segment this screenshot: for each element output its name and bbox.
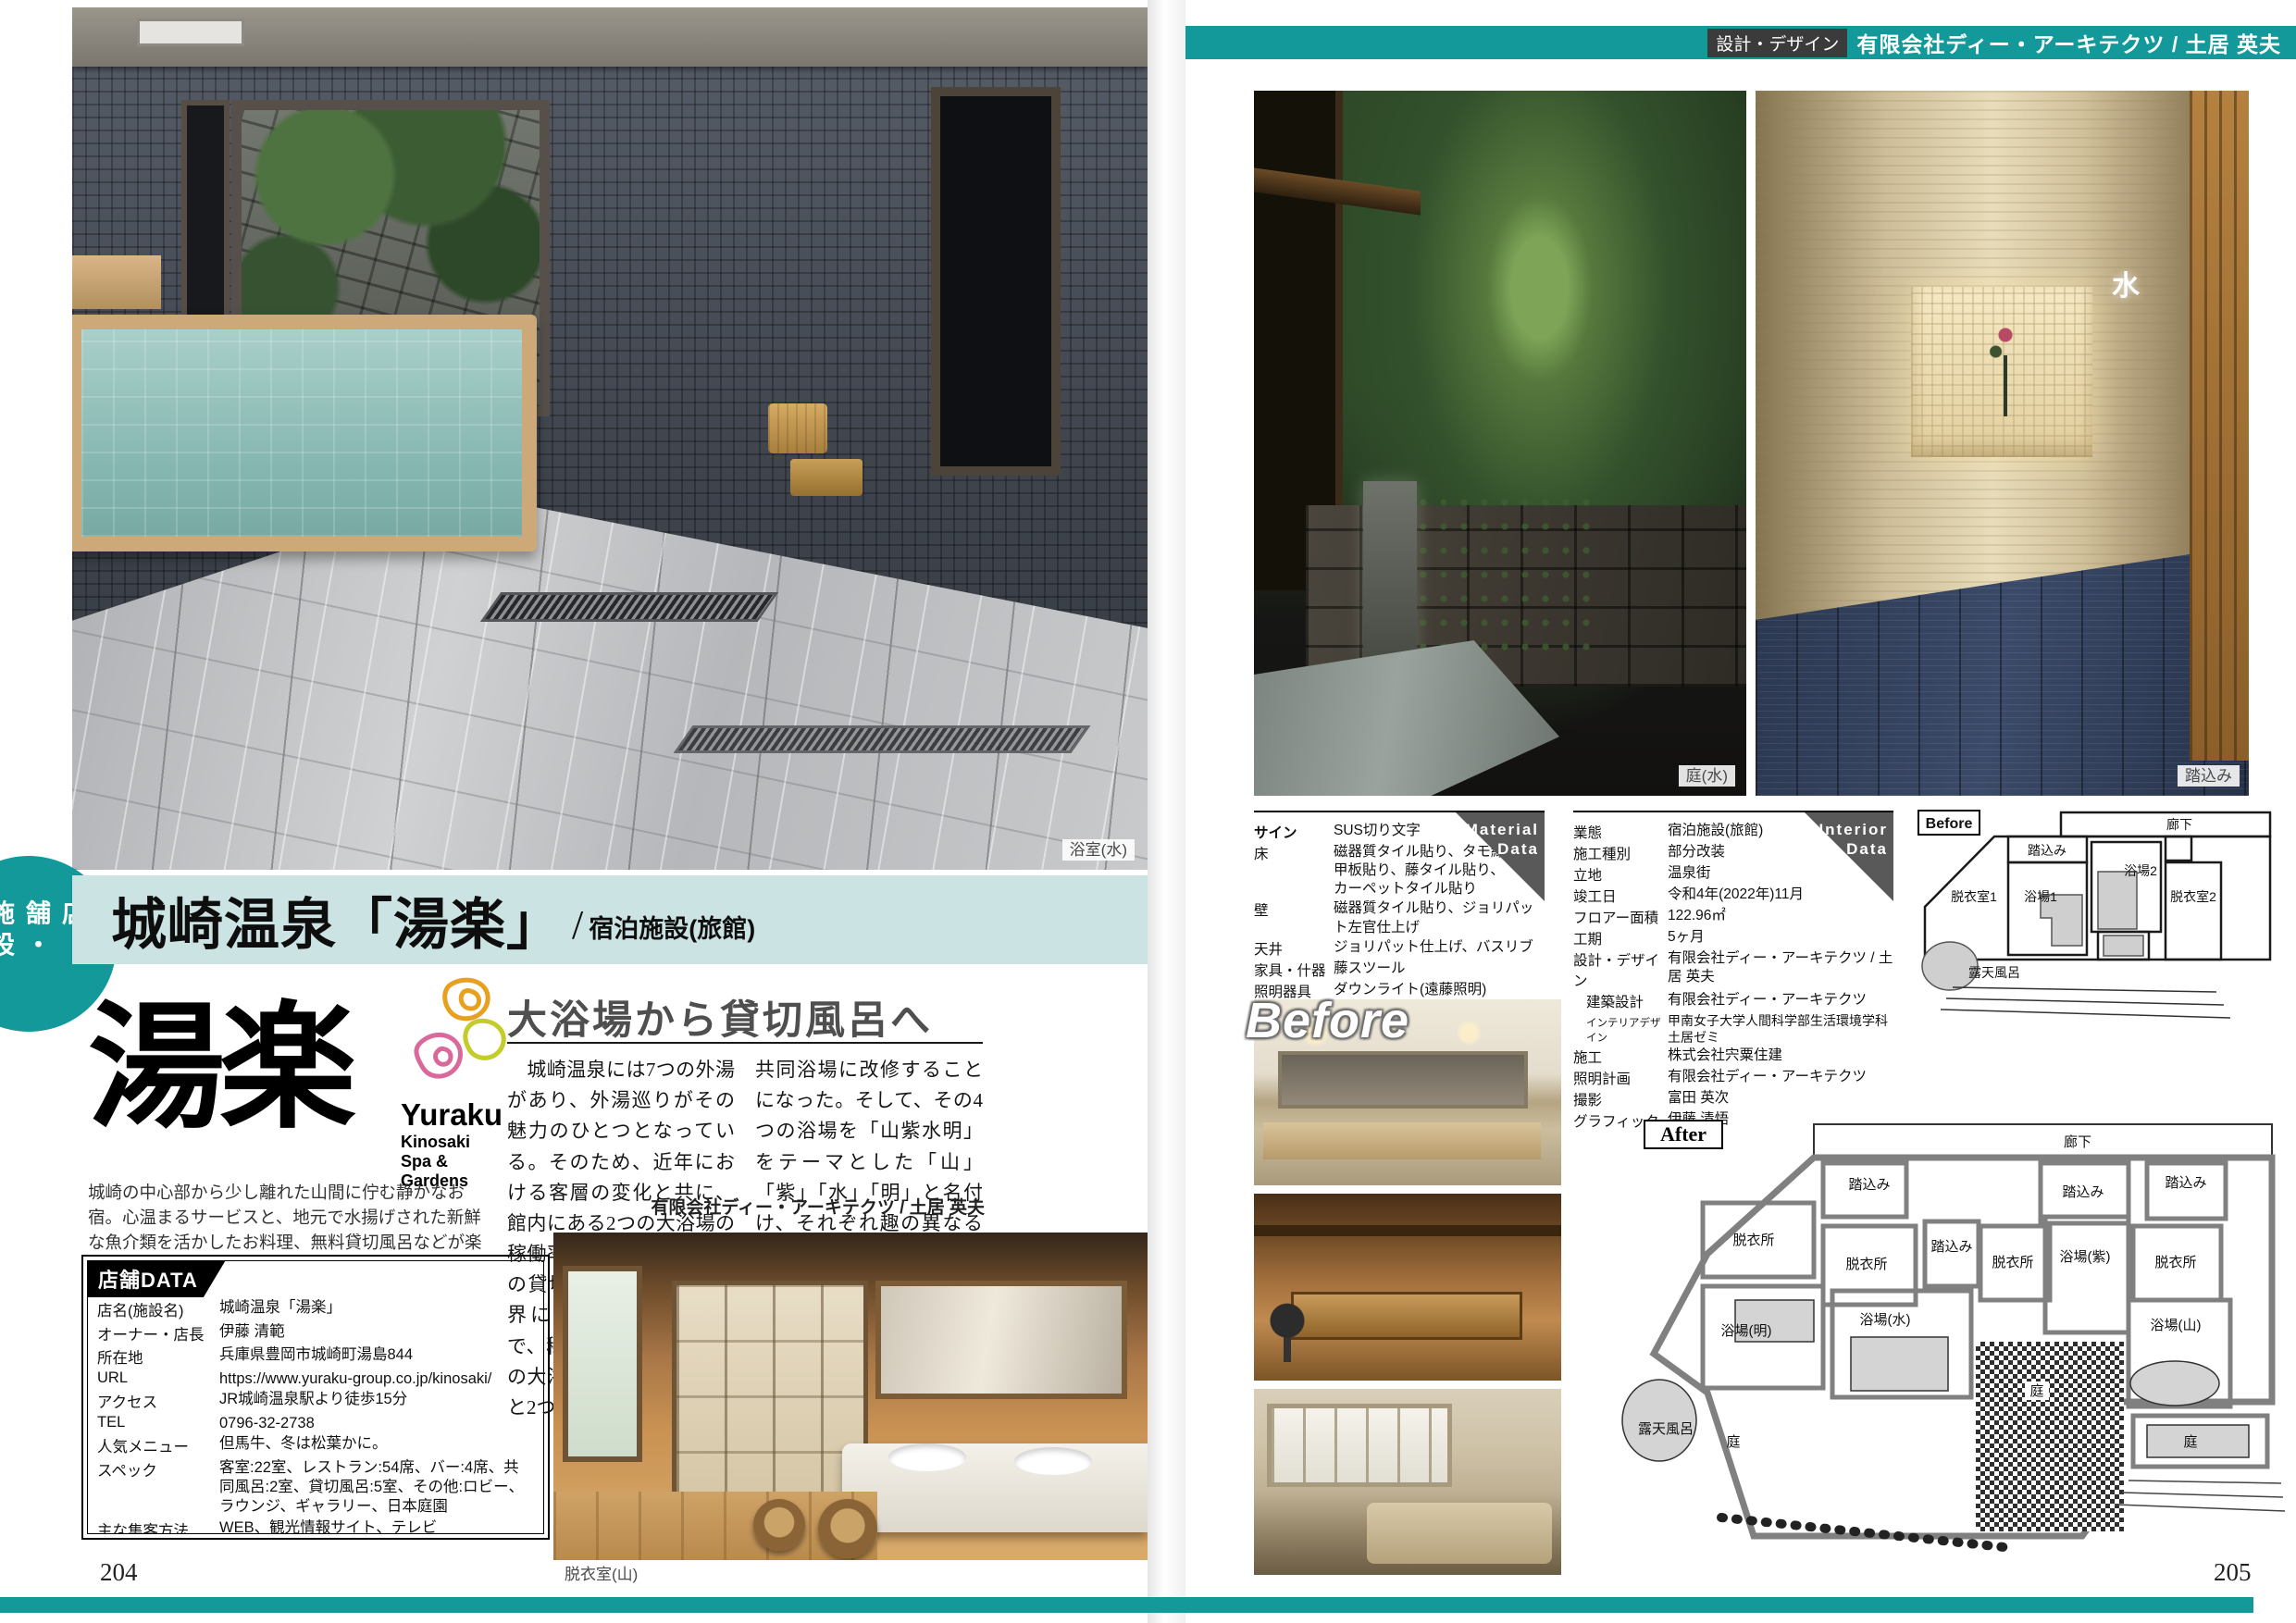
interior-data-tag: Interior Data [1818, 820, 1888, 860]
shop-data-title: 店舗DATA [87, 1260, 226, 1297]
plan-room-label: 浴場(山) [2151, 1318, 2202, 1333]
plan-room-label: 踏込み [2165, 1175, 2206, 1191]
plan-room-label: 浴場(明) [1721, 1323, 1772, 1339]
electric-fan [1267, 1303, 1308, 1362]
interior-row: 照明計画有限会社ディー・アーキテクツ [1573, 1068, 1893, 1088]
wood-bench [72, 255, 161, 309]
page-gutter [1148, 0, 1185, 1623]
material-row: 天井ジョリパット仕上げ、バスリブ [1254, 938, 1545, 959]
shop-data-inner: 店舗DATA 店名(施設名)城崎温泉「湯楽」 オーナー・店長伊藤 清範 所在地兵… [87, 1260, 544, 1534]
floor-drain-grate [480, 592, 778, 622]
stone-fountain [1363, 481, 1417, 657]
bathtub [1367, 1503, 1552, 1564]
shop-data-row: 人気メニュー但馬牛、冬は松葉かに。 [97, 1434, 532, 1456]
plan-room-label: 浴場(水) [1860, 1312, 1911, 1328]
shop-data-row: TEL0796-32-2738 [97, 1414, 532, 1433]
plan-room-label: 廊下 [2064, 1134, 2091, 1150]
ceiling-vent [137, 19, 244, 46]
plan-room-label: 脱衣室2 [2170, 889, 2216, 904]
credit-tag: 設計・デザイン [1707, 29, 1847, 57]
title-slash: / [572, 901, 583, 948]
photo-caption: 浴室(水) [1062, 839, 1135, 861]
flower-arrangement [1987, 324, 2024, 416]
mirror [1278, 1051, 1528, 1109]
washbasin [888, 1443, 966, 1471]
dark-doorway [931, 87, 1061, 476]
plan-room-label: 庭 [2183, 1434, 2197, 1450]
shop-data-row: アクセスJR城崎温泉駅より徒歩15分 [97, 1390, 532, 1412]
after-floor-plan: 廊下 踏込み 踏込み 踏込み 踏込み 脱衣所 脱衣所 脱衣所 脱衣所 浴場(紫)… [1615, 1115, 2296, 1578]
logo-kanji: 湯楽 [88, 985, 351, 1156]
floor-drain-grate [673, 725, 1090, 753]
shop-data-row: 店名(施設名)城崎温泉「湯楽」 [97, 1298, 532, 1320]
wood-beam [1254, 1225, 1561, 1236]
article-heading: 大浴場から貸切風呂へ [507, 988, 983, 1046]
shop-data-row: 所在地兵庫県豊岡市城崎町湯島844 [97, 1345, 532, 1368]
page-title: 城崎温泉「湯楽」 [111, 880, 563, 960]
window [563, 1266, 642, 1462]
photo-caption: 踏込み [2178, 765, 2240, 787]
interior-row: 設計・デザイン有限会社ディー・アーキテクツ / 土居 英夫 [1573, 949, 1893, 990]
interior-row: 施工株式会社宍粟住建 [1573, 1047, 1893, 1067]
plan-room-label: 脱衣所 [2154, 1255, 2196, 1270]
wood-door [2190, 91, 2249, 761]
interior-data-box: Interior Data 業態宿泊施設(旅館) 施工種別部分改装 立地温泉街 … [1573, 811, 1893, 1055]
plan-room-label: 庭 [2029, 1383, 2043, 1399]
plan-room-label: 露天風呂 [1638, 1421, 1694, 1437]
bottom-accent-bar [0, 1597, 2253, 1613]
shop-data-row: オーナー・店長伊藤 清範 [97, 1322, 532, 1344]
plan-room-label: 脱衣所 [1845, 1257, 1887, 1272]
plan-room-label: 踏込み [1930, 1239, 1972, 1255]
dressing-room-photo [553, 1233, 1148, 1560]
plan-room-label: 脱衣所 [1732, 1233, 1774, 1248]
yuraku-logo: 湯楽 Yuraku Kinosaki Spa & Gardens [88, 988, 495, 1173]
article-byline: 有限会社ディー・アーキテクツ / 土居 英夫 [507, 1194, 985, 1219]
before-photo-stack [1254, 999, 1561, 1575]
rattan-stool [818, 1499, 877, 1558]
water-kanji-sign: 水 [2112, 263, 2140, 304]
title-category: 宿泊施設(旅館) [589, 909, 755, 945]
material-data-tag: Material Data [1465, 820, 1539, 860]
rattan-stool [753, 1499, 805, 1551]
main-bath-photo: 浴室(水) [72, 7, 1148, 870]
plan-room-label: 踏込み [2062, 1184, 2104, 1200]
wooden-stool [790, 459, 863, 496]
credit-header-bar: 設計・デザイン 有限会社ディー・アーキテクツ / 土居 英夫 [1185, 26, 2296, 59]
shop-data-row: スペック客室:22室、レストラン:54席、バー:4席、共同風呂:2室、貸切風呂:… [97, 1458, 532, 1517]
plan-room-label: 脱衣室1 [1951, 889, 1997, 904]
plan-room-label: 踏込み [2028, 843, 2066, 858]
washbasin [1014, 1447, 1092, 1475]
material-row: 家具・什器藤スツール [1254, 960, 1545, 980]
before-photo-dressing [1254, 1194, 1561, 1380]
plan-room-label: 脱衣所 [1992, 1255, 2033, 1270]
heading-rule [507, 1042, 983, 1044]
garden-photo: 庭(水) [1254, 91, 1746, 796]
before-overlay-label: Before [1246, 992, 1409, 1049]
plan-room-label: 廊下 [2166, 817, 2192, 832]
after-plan-tag: After [1644, 1120, 1723, 1149]
photo-caption: 庭(水) [1679, 765, 1735, 787]
mirror [875, 1281, 1127, 1399]
interior-row: 撮影富田 英次 [1573, 1089, 1893, 1109]
magazine-spread: 浴室(水) 店舗・施設 城崎温泉「湯楽」 / 宿泊施設(旅館) 湯楽 Yurak… [0, 0, 2296, 1623]
plan-room-label: 浴場(紫) [2060, 1249, 2111, 1265]
material-row: 壁磁器質タイル貼り、ジョリパット左官仕上げ [1254, 899, 1545, 936]
photo-caption: 脱衣室(山) [557, 1564, 645, 1585]
interior-row: インテリアデザイン甲南女子大学人間科学部生活環境学科土居ゼミ [1573, 1012, 1893, 1046]
plan-room-label: 浴場2 [2124, 863, 2157, 878]
plan-room-label: 露天風呂 [1968, 965, 2020, 980]
shop-data-box: 店舗DATA 店名(施設名)城崎温泉「湯楽」 オーナー・店長伊藤 清範 所在地兵… [81, 1255, 550, 1540]
interior-row: 工期5ヶ月 [1573, 928, 1893, 948]
title-band: 城崎温泉「湯楽」 / 宿泊施設(旅館) [72, 875, 1148, 964]
wooden-rim-bath [72, 315, 537, 551]
plan-room-label: 浴場1 [2024, 889, 2057, 904]
credit-firm: 有限会社ディー・アーキテクツ / 土居 英夫 [1856, 27, 2281, 58]
before-floor-plan: Before 廊下 踏込み 浴場1 浴場2 脱衣室1 脱衣室2 露天風呂 [1902, 807, 2287, 1116]
interior-row: フロアー面積122.96㎡ [1573, 907, 1893, 927]
plan-room-label: 踏込み [1848, 1177, 1890, 1193]
page-number-right: 205 [2214, 1558, 2252, 1587]
hanging-vines [1393, 490, 1596, 657]
page-number-left: 204 [100, 1558, 138, 1587]
shop-data-row: URLhttps://www.yuraku-group.co.jp/kinosa… [97, 1369, 532, 1389]
before-plan-tag: Before [1926, 816, 1973, 832]
plan-room-label: 庭 [1726, 1434, 1740, 1450]
counter [1263, 1122, 1541, 1159]
window [1267, 1404, 1452, 1487]
logo-latin: Yuraku [401, 1097, 503, 1133]
entry-corridor-photo: 水 踏込み [1756, 91, 2249, 796]
interior-row: 建築設計有限会社ディー・アーキテクツ [1573, 991, 1893, 1011]
wooden-bucket [768, 403, 827, 453]
sliding-doors [672, 1281, 868, 1514]
before-photo-bath [1254, 1389, 1561, 1575]
shop-data-row: 主な集客方法WEB、観光情報サイト、テレビ [97, 1518, 532, 1534]
material-data-box: Material Data サインSUS切り文字 床磁器質タイル貼り、タモ縁甲板… [1254, 811, 1545, 983]
counter [1291, 1292, 1522, 1340]
